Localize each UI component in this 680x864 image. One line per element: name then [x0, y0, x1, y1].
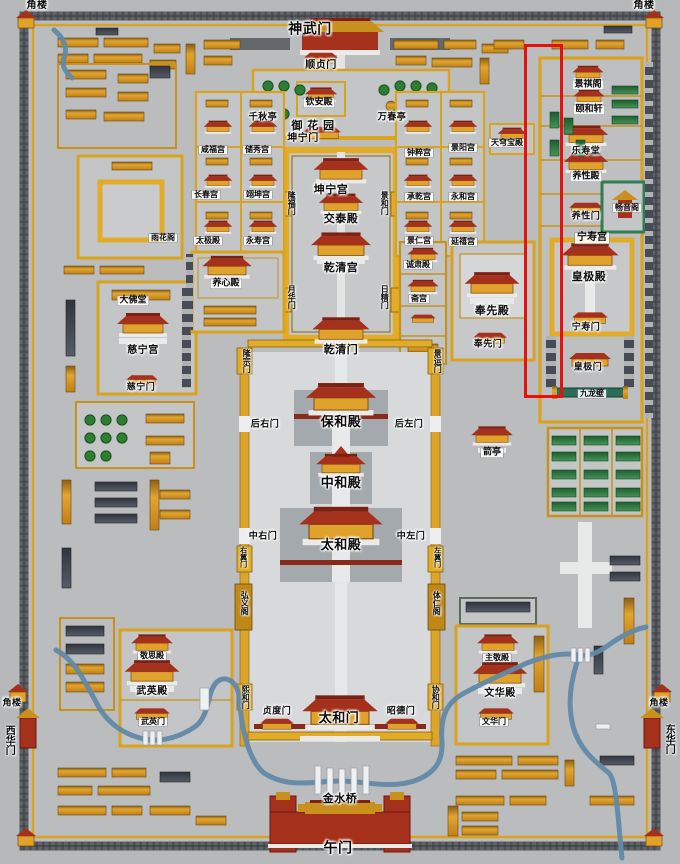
hongyi-pavilion-icon — [235, 584, 252, 630]
tiren-pavilion-icon — [428, 584, 445, 630]
map-svg — [0, 0, 680, 864]
meridian-gate-icon — [268, 792, 412, 852]
inner-court-compound — [282, 150, 400, 338]
yangxin-hall-compound — [186, 252, 284, 332]
wenyuan-pavilion-icon — [466, 602, 530, 612]
annotation-rectangle — [524, 44, 563, 398]
wenhua-hall-compound — [456, 598, 548, 744]
fengxian-hall-compound — [452, 242, 534, 360]
outer-court — [235, 317, 445, 746]
shunzhen-gate-icon — [304, 53, 338, 63]
nine-dragon-wall-icon — [552, 386, 628, 399]
west-six-palaces — [196, 92, 284, 256]
cining-garden — [76, 402, 194, 468]
south-three-lodges — [548, 428, 642, 516]
forbidden-city-map: 角楼神武门角楼顺贞门钦安殿千秋亭万春亭御 花 园坤宁门天穹宝殿景祺阁颐和轩乐寿堂… — [0, 0, 680, 864]
